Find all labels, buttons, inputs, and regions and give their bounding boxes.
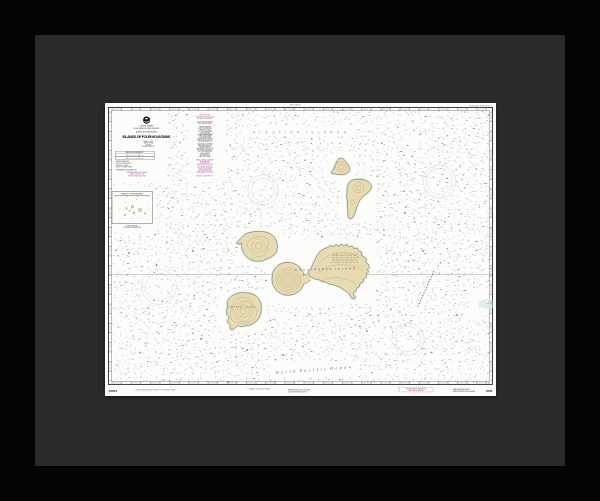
svg-text:POLLUTION REPORTS: POLLUTION REPORTS <box>116 163 132 165</box>
svg-text:16501: 16501 <box>108 388 117 392</box>
svg-text:SOUNDINGS IN FATHOMS: SOUNDINGS IN FATHOMS <box>469 104 491 107</box>
svg-text:OCEANIC ATMOSPHERIC: OCEANIC ATMOSPHERIC <box>247 387 272 390</box>
svg-text:CHART DATUM MEAN LOWER LOW WAT: CHART DATUM MEAN LOWER LOW WATER NOAA <box>135 388 176 391</box>
svg-text:ISLANDS OF FOUR MOUNTAINS: ISLANDS OF FOUR MOUNTAINS <box>122 134 171 138</box>
svg-text:16501: 16501 <box>485 390 492 393</box>
svg-text:UNITED STATES: UNITED STATES <box>139 124 154 127</box>
svg-text:H E R B E R T I S L A N D: H E R B E R T I S L A N D <box>229 305 256 308</box>
